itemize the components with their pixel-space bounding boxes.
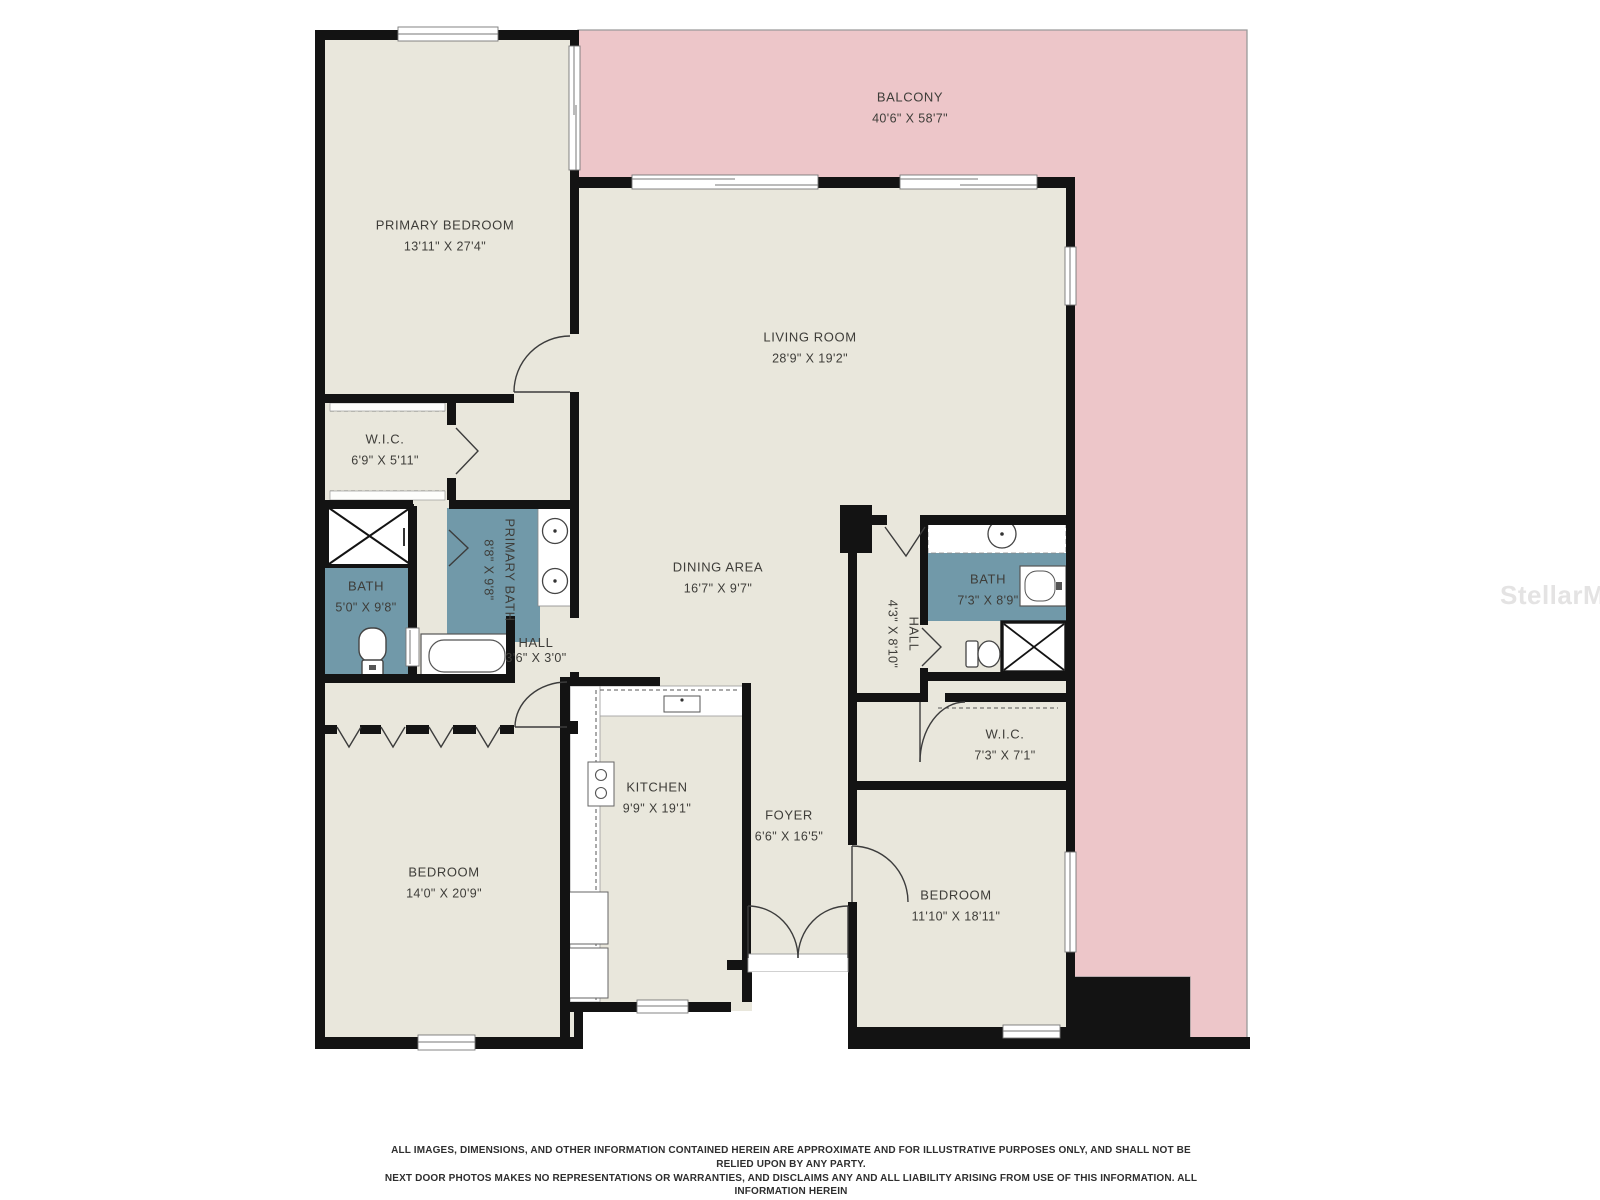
disclaimer-line-2: NEXT DOOR PHOTOS MAKES NO REPRESENTATION…	[371, 1172, 1211, 1200]
room-name: W.I.C.	[351, 430, 419, 451]
room-dims: 8'8" X 9'8"	[479, 518, 499, 621]
room-name: BATH	[957, 570, 1018, 591]
appliance-icon	[568, 948, 608, 998]
room-label-primary-bedroom: PRIMARY BEDROOM 13'11" X 27'4"	[376, 216, 515, 257]
room-dims: 28'9" X 19'2"	[763, 348, 856, 368]
room-name: DINING AREA	[673, 558, 763, 579]
room-label-bedroom-left: BEDROOM 14'0" X 20'9"	[406, 863, 482, 904]
toilet-left-icon	[359, 628, 386, 676]
room-name: BALCONY	[872, 88, 948, 109]
room-label-balcony: BALCONY 40'6" X 58'7"	[872, 88, 948, 129]
room-label-wic-right: W.I.C. 7'3" X 7'1"	[974, 725, 1035, 766]
room-dims: 4'3" X 8'10"	[883, 600, 903, 669]
room-dims: 9'9" X 19'1"	[623, 798, 692, 818]
room-name: HALL	[903, 600, 924, 669]
room-label-living-room: LIVING ROOM 28'9" X 19'2"	[763, 328, 856, 369]
refrigerator-icon	[568, 892, 608, 944]
room-label-hall-right: HALL 4'3" X 8'10"	[883, 600, 924, 669]
floor-plan-page: BALCONY 40'6" X 58'7" PRIMARY BEDROOM 13…	[0, 0, 1600, 1200]
floor-plan-graphic	[0, 0, 1600, 1200]
primary-bedroom-floor	[319, 34, 574, 394]
bathtub-primary-icon	[421, 634, 513, 678]
room-label-foyer: FOYER 6'6" X 16'5"	[755, 806, 824, 847]
room-name: W.I.C.	[974, 725, 1035, 746]
shower-right-icon	[1002, 622, 1066, 672]
room-name: FOYER	[755, 806, 824, 827]
left-column-floor	[319, 394, 574, 1037]
disclaimer-line-1: ALL IMAGES, DIMENSIONS, AND OTHER INFORM…	[371, 1144, 1211, 1172]
bathtub-right-icon	[1020, 566, 1066, 606]
room-dims: 6'6" X 16'5"	[755, 826, 824, 846]
stove-icon	[588, 762, 614, 806]
room-dims: 6'9" X 5'11"	[351, 450, 419, 470]
room-dims: 11'10" X 18'11"	[912, 906, 1001, 926]
room-label-bedroom-right: BEDROOM 11'10" X 18'11"	[912, 886, 1001, 927]
room-name: LIVING ROOM	[763, 328, 856, 349]
room-name: BATH	[335, 577, 396, 598]
toilet-right-icon	[966, 641, 1000, 667]
room-name: HALL	[505, 635, 566, 651]
room-label-bath-right: BATH 7'3" X 8'9"	[957, 570, 1018, 611]
room-name: PRIMARY BATH	[499, 518, 520, 621]
room-label-kitchen: KITCHEN 9'9" X 19'1"	[623, 778, 692, 819]
room-label-primary-bath: PRIMARY BATH 8'8" X 9'8"	[479, 518, 520, 621]
disclaimer-text: ALL IMAGES, DIMENSIONS, AND OTHER INFORM…	[371, 1144, 1211, 1200]
room-dims: 14'0" X 20'9"	[406, 883, 482, 903]
room-dims: 13'11" X 27'4"	[376, 236, 515, 256]
room-name: BEDROOM	[912, 886, 1001, 907]
room-dims: 7'3" X 8'9"	[957, 590, 1018, 610]
room-dims: 3'6" X 3'0"	[505, 651, 566, 667]
primary-sinks-counter	[538, 506, 572, 606]
room-dims: 5'0" X 9'8"	[335, 597, 396, 617]
room-name: BEDROOM	[406, 863, 482, 884]
room-label-wic-left: W.I.C. 6'9" X 5'11"	[351, 430, 419, 471]
shower-left-icon	[327, 506, 412, 566]
room-dims: 40'6" X 58'7"	[872, 108, 948, 128]
room-dims: 16'7" X 9'7"	[673, 578, 763, 598]
room-name: KITCHEN	[623, 778, 692, 799]
room-dims: 7'3" X 7'1"	[974, 745, 1035, 765]
room-label-bath-left: BATH 5'0" X 9'8"	[335, 577, 396, 618]
stellar-mls-watermark: StellarMLS	[1500, 580, 1600, 611]
room-name: PRIMARY BEDROOM	[376, 216, 515, 237]
room-label-dining-area: DINING AREA 16'7" X 9'7"	[673, 558, 763, 599]
room-label-hall-left: HALL 3'6" X 3'0"	[505, 635, 566, 667]
